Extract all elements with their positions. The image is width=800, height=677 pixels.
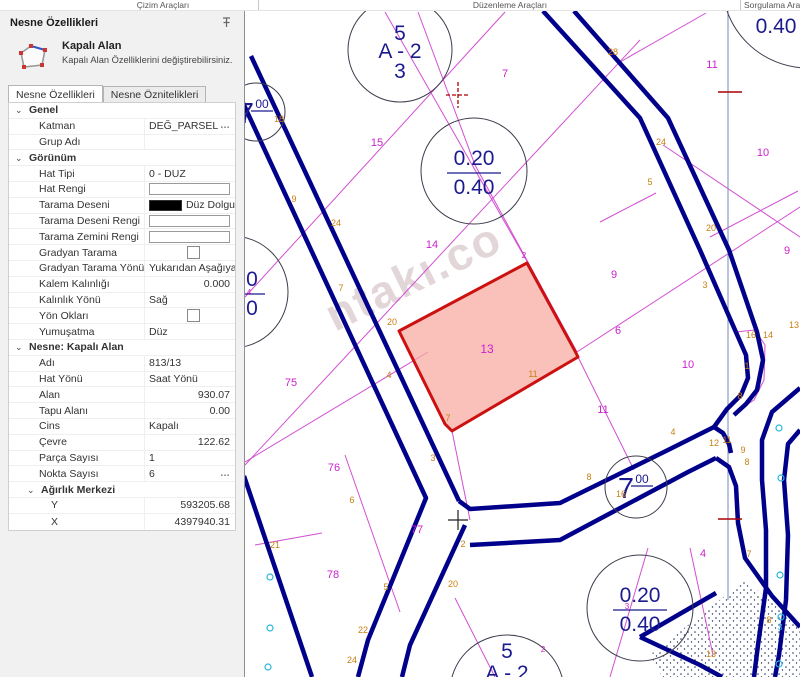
parcel-number-label: 75	[285, 377, 297, 389]
point-number-label: 16	[746, 330, 756, 340]
properties-panel: Nesne Özellikleri Kapalı Alan Kapalı Ala…	[0, 10, 245, 677]
point-number-label: 13	[706, 649, 716, 659]
point-number-label: 8	[737, 391, 742, 401]
point-number-label: 20	[387, 317, 397, 327]
toolbar-group-cizim[interactable]: Çizim Araçları	[88, 0, 238, 10]
property-label: Gradyan Tarama	[9, 247, 144, 259]
object-type-title: Kapalı Alan	[62, 40, 233, 52]
property-label: Gradyan Tarama Yönü	[9, 262, 144, 274]
property-label: Nokta Sayısı	[9, 468, 144, 480]
parcel-number-label: 76	[328, 462, 340, 474]
property-value[interactable]: Saat Yönü	[144, 372, 235, 387]
property-value[interactable]: DEĞ_PARSEL…	[144, 119, 235, 134]
ribbon-toolbar: Çizim Araçları Düzenleme Araçları Sorgul…	[0, 0, 800, 11]
toolbar-group-sorgulama[interactable]: Sorgulama Araç	[744, 0, 800, 10]
property-value[interactable]: 6…	[144, 466, 235, 481]
panel-title: Nesne Özellikleri	[10, 17, 98, 29]
circle-text: 0.40	[756, 15, 797, 38]
point-number-label: 3	[702, 280, 707, 290]
point-number-label: 5	[383, 582, 388, 592]
point-number-label: 3	[430, 453, 435, 463]
chevron-down-icon[interactable]: ⌄	[15, 342, 27, 352]
circle-text: 0	[246, 297, 258, 320]
panel-tabs: Nesne Özellikleri Nesne Öznitelikleri	[8, 83, 244, 102]
point-number-label: 16	[616, 489, 626, 499]
property-label: Tarama Deseni	[9, 199, 144, 211]
property-row: Alan930.07	[9, 387, 235, 403]
property-row: Tarama DeseniDüz Dolgu	[9, 198, 235, 214]
circle-text: 00	[635, 472, 649, 486]
property-label: Grup Adı	[9, 136, 144, 148]
toolbar-separator	[258, 0, 259, 10]
point-number-label: 22	[358, 625, 368, 635]
color-box[interactable]	[149, 215, 230, 227]
property-value[interactable]: 930.07	[144, 387, 235, 402]
point-number-label: 5	[647, 177, 652, 187]
parcel-number-label: 10	[757, 147, 769, 159]
property-value[interactable]	[144, 182, 235, 197]
point-number-label: 7	[338, 283, 343, 293]
tab-nesne-ozellikleri[interactable]: Nesne Özellikleri	[8, 85, 103, 102]
circle-text: A - 2	[485, 662, 528, 677]
toolbar-group-duzenleme[interactable]: Düzenleme Araçları	[435, 0, 585, 10]
property-label: Kalınlık Yönü	[9, 294, 144, 306]
property-value[interactable]	[144, 229, 235, 244]
point-number-label: 11	[722, 435, 731, 445]
property-row: Parça Sayısı1	[9, 451, 235, 467]
color-box[interactable]	[149, 231, 230, 243]
section-label: Görünüm	[29, 152, 76, 164]
parcel-number-label: 9	[611, 269, 617, 281]
property-value[interactable]: Düz	[144, 324, 235, 339]
point-number-label: 4	[670, 427, 675, 437]
cyan-number-label: 3	[777, 622, 782, 632]
property-row: Yön Okları	[9, 308, 235, 324]
circle-text: 0.40	[620, 613, 661, 636]
toolbar-separator	[740, 0, 741, 10]
point-number-label: 8	[744, 457, 749, 467]
property-value[interactable]: Sağ	[144, 293, 235, 308]
property-label: Çevre	[9, 436, 144, 448]
point-number-label: 12	[709, 438, 719, 448]
property-row: YumuşatmaDüz	[9, 324, 235, 340]
circle-text: 00	[255, 97, 269, 111]
point-number-label: 9	[740, 445, 745, 455]
property-value[interactable]: 813/13	[144, 356, 235, 371]
property-label: Y	[9, 499, 144, 511]
property-row: Tarama Deseni Rengi	[9, 214, 235, 230]
property-value[interactable]: 122.62	[144, 435, 235, 450]
property-row: CinsKapalı	[9, 419, 235, 435]
panel-header: Nesne Özellikleri	[0, 10, 244, 36]
color-box[interactable]	[149, 183, 230, 195]
property-row: Çevre122.62	[9, 435, 235, 451]
property-row: Kalem Kalınlığı0.000	[9, 277, 235, 293]
small-number-label: 3	[625, 602, 630, 611]
checkbox[interactable]	[187, 246, 200, 259]
circle-text: 0.20	[454, 147, 495, 170]
section-label: Genel	[29, 104, 58, 116]
object-info: Kapalı Alan Kapalı Alan Özelliklerini de…	[0, 36, 244, 83]
property-row: Tapu Alanı0.00	[9, 403, 235, 419]
property-value[interactable]: 0 - DUZ	[144, 166, 235, 181]
section-row: ⌄Genel	[9, 103, 235, 119]
property-label: Cins	[9, 420, 144, 432]
parcel-number-label: 6	[615, 325, 621, 337]
property-row: Hat YönüSaat Yönü	[9, 372, 235, 388]
parcel-number-label: 15	[371, 137, 383, 149]
property-value[interactable]	[144, 214, 235, 229]
parcel-number-label: 78	[327, 569, 339, 581]
property-label: Alan	[9, 389, 144, 401]
property-label: Hat Rengi	[9, 183, 144, 195]
point-number-label: 7	[746, 549, 751, 559]
point-number-label: 9	[291, 194, 296, 204]
property-value[interactable]: 4397940.31	[144, 514, 235, 530]
parcel-number-label: 9	[784, 245, 790, 257]
point-number-label: 21	[270, 540, 280, 550]
property-value[interactable]	[144, 135, 235, 150]
property-value[interactable]: 0.00	[144, 403, 235, 418]
section-label: Nesne: Kapalı Alan	[29, 341, 124, 353]
property-value[interactable]: 0.000	[144, 277, 235, 292]
point-number-label: 13	[789, 320, 799, 330]
point-number-label: 28	[608, 47, 618, 57]
object-description: Kapalı Alan Özelliklerini değiştirebilir…	[62, 55, 233, 65]
parcel-number-label: 4	[700, 548, 706, 560]
point-number-label: 4	[386, 370, 391, 380]
property-label: Katman	[9, 120, 144, 132]
point-number-label: 20	[448, 579, 458, 589]
parcel-number-label: 11	[597, 404, 608, 416]
parcel-number-label: 7	[502, 68, 508, 80]
property-label: X	[9, 516, 144, 528]
property-value[interactable]: Düz Dolgu	[144, 198, 235, 213]
parcel-number-label: 11	[706, 59, 717, 71]
property-grid: ⌄GenelKatmanDEĞ_PARSEL…Grup Adı⌄GörünümH…	[8, 102, 236, 531]
property-label: Yön Okları	[9, 310, 144, 322]
property-value[interactable]: Kapalı	[144, 419, 235, 434]
point-number-label: 7	[445, 413, 450, 423]
property-row: Y593205.68	[9, 498, 235, 514]
property-row: Kalınlık YönüSağ	[9, 293, 235, 309]
circle-text: 5	[501, 640, 513, 663]
property-label: Tapu Alanı	[9, 405, 144, 417]
section-row: ⌄Görünüm	[9, 150, 235, 166]
small-number-label: 2	[541, 645, 546, 654]
point-number-label: 1	[744, 361, 749, 371]
point-number-label: 6	[349, 495, 354, 505]
property-row: Gradyan Tarama	[9, 245, 235, 261]
circle-text: 0.40	[454, 176, 495, 199]
property-row: Gradyan Tarama YönüYukarıdan Aşağıya	[9, 261, 235, 277]
chevron-down-icon[interactable]: ⌄	[15, 153, 27, 163]
section-row: ⌄Nesne: Kapalı Alan	[9, 340, 235, 356]
tab-nesne-oznitelikleri[interactable]: Nesne Öznitelikleri	[103, 86, 207, 102]
point-number-label: 24	[331, 218, 341, 228]
point-number-label: 24	[656, 137, 666, 147]
point-number-label: 2	[460, 539, 465, 549]
property-label: Adı	[9, 357, 144, 369]
closed-area-icon	[14, 42, 50, 77]
property-row: Hat Rengi	[9, 182, 235, 198]
property-row: Adı813/13	[9, 356, 235, 372]
property-label: Kalem Kalınlığı	[9, 278, 144, 290]
ellipsis-button[interactable]: …	[220, 123, 235, 129]
property-label: Hat Tipi	[9, 168, 144, 180]
checkbox[interactable]	[187, 309, 200, 322]
property-row: Hat Tipi0 - DUZ	[9, 166, 235, 182]
property-label: Parça Sayısı	[9, 452, 144, 464]
parcel-number-label: 14	[426, 239, 438, 251]
chevron-down-icon[interactable]: ⌄	[27, 485, 39, 495]
parcel-number-label: 10	[682, 359, 694, 371]
property-value[interactable]: 1	[144, 451, 235, 466]
ellipsis-button[interactable]: …	[220, 471, 235, 477]
property-label: Yumuşatma	[9, 326, 144, 338]
property-row: Grup Adı	[9, 135, 235, 151]
property-value[interactable]: Yukarıdan Aşağıya	[144, 261, 235, 276]
point-number-label: 20	[706, 223, 716, 233]
pin-icon[interactable]	[220, 16, 234, 30]
property-row: Nokta Sayısı6…	[9, 466, 235, 482]
property-label: Hat Yönü	[9, 373, 144, 385]
section-label: Ağırlık Merkezi	[41, 484, 115, 496]
small-number-label: 2	[522, 251, 527, 260]
property-row: KatmanDEĞ_PARSEL…	[9, 119, 235, 135]
property-label: Tarama Zemini Rengi	[9, 231, 144, 243]
small-number-label: 4	[247, 288, 252, 297]
point-number-label: 8	[766, 615, 771, 625]
property-value[interactable]	[144, 245, 235, 260]
property-value[interactable]	[144, 308, 235, 323]
property-row: X4397940.31	[9, 514, 235, 530]
point-number-label: 14	[763, 330, 773, 340]
circle-text: 3	[394, 60, 406, 83]
parcel-number-label: 77	[411, 524, 423, 536]
selected-parcel-label: 13	[480, 342, 494, 356]
property-label: Tarama Deseni Rengi	[9, 215, 144, 227]
property-value[interactable]: 593205.68	[144, 498, 235, 513]
point-number-label: 24	[347, 655, 357, 665]
point-number-label: 18	[274, 114, 284, 124]
chevron-down-icon[interactable]: ⌄	[15, 105, 27, 115]
point-number-label: 8	[586, 472, 591, 482]
property-row: Tarama Zemini Rengi	[9, 229, 235, 245]
point-number-label: 11	[528, 369, 537, 379]
fill-swatch[interactable]	[149, 200, 182, 211]
section-row: ⌄Ağırlık Merkezi	[9, 482, 235, 498]
